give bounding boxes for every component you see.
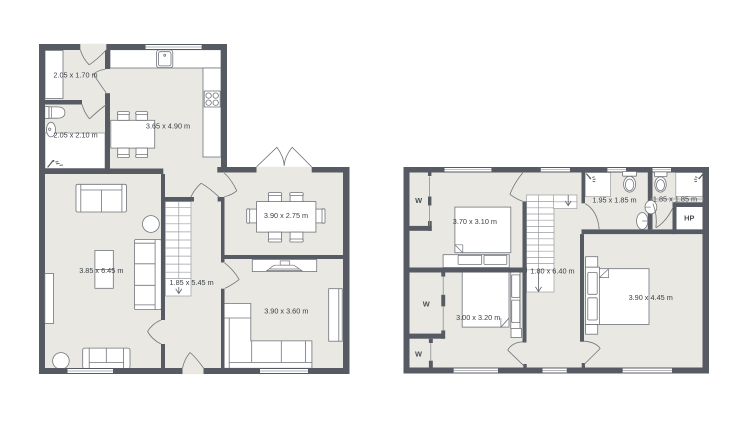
- svg-text:1.85 x 5.45 m: 1.85 x 5.45 m: [169, 278, 213, 287]
- svg-text:W: W: [423, 300, 430, 309]
- svg-text:2.05 x 2.10 m: 2.05 x 2.10 m: [53, 131, 97, 140]
- svg-text:3.90 x 3.60 m: 3.90 x 3.60 m: [264, 307, 308, 316]
- svg-text:1.95 x 1.85 m: 1.95 x 1.85 m: [592, 196, 636, 205]
- svg-text:3.85 x 6.45 m: 3.85 x 6.45 m: [79, 266, 123, 275]
- svg-text:W: W: [415, 196, 422, 205]
- svg-text:HP: HP: [684, 213, 694, 222]
- svg-text:2.05 x 1.70 m: 2.05 x 1.70 m: [53, 71, 97, 80]
- svg-text:1.80 x 6.40 m: 1.80 x 6.40 m: [530, 267, 574, 276]
- svg-text:3.90 x 2.75 m: 3.90 x 2.75 m: [264, 211, 308, 220]
- svg-text:3.00 x 3.20 m: 3.00 x 3.20 m: [456, 313, 500, 322]
- svg-text:3.70 x 3.10 m: 3.70 x 3.10 m: [453, 217, 497, 226]
- svg-text:1.85 x 1.85 m: 1.85 x 1.85 m: [653, 195, 697, 204]
- svg-text:W: W: [415, 349, 422, 358]
- svg-text:3.90 x 4.45 m: 3.90 x 4.45 m: [629, 293, 673, 302]
- svg-text:3.65 x 4.90 m: 3.65 x 4.90 m: [146, 122, 190, 131]
